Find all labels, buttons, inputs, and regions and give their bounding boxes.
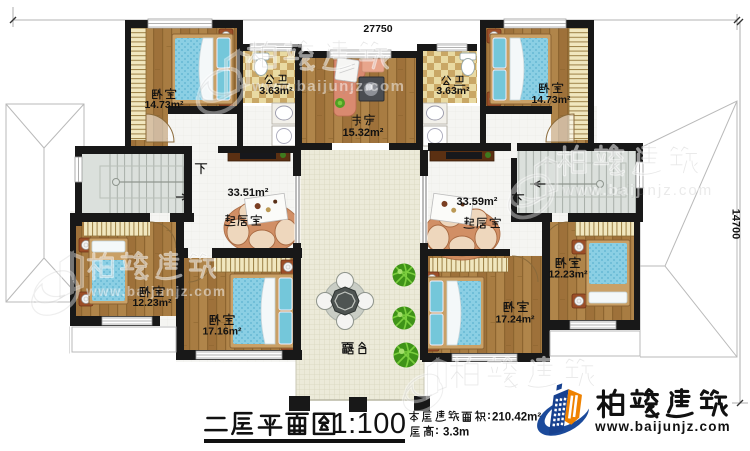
svg-text:12.23m²: 12.23m²	[548, 269, 588, 281]
svg-text:14.73m²: 14.73m²	[144, 99, 184, 111]
svg-text:17.16m²: 17.16m²	[202, 326, 242, 338]
svg-text:15.32m²: 15.32m²	[343, 127, 384, 139]
svg-text:www.baijunjz.com: www.baijunjz.com	[594, 419, 731, 434]
svg-text:1:100: 1:100	[331, 408, 406, 440]
svg-text:17.24m²: 17.24m²	[495, 314, 535, 326]
svg-text:12.23m²: 12.23m²	[132, 297, 172, 309]
svg-text::: :	[487, 408, 491, 422]
svg-text:14.73m²: 14.73m²	[531, 94, 571, 106]
svg-text:14700: 14700	[730, 209, 742, 240]
svg-text:3.63m²: 3.63m²	[259, 85, 293, 97]
svg-text::: :	[435, 423, 439, 437]
svg-text:www.baijunjz.com: www.baijunjz.com	[561, 182, 713, 199]
svg-text:33.59m²: 33.59m²	[457, 196, 498, 208]
svg-text:3.3m: 3.3m	[443, 427, 469, 439]
svg-text:3.63m²: 3.63m²	[436, 85, 470, 97]
svg-text:27750: 27750	[363, 23, 392, 35]
svg-text:210.42m²: 210.42m²	[492, 412, 541, 424]
svg-text:33.51m²: 33.51m²	[228, 187, 269, 199]
